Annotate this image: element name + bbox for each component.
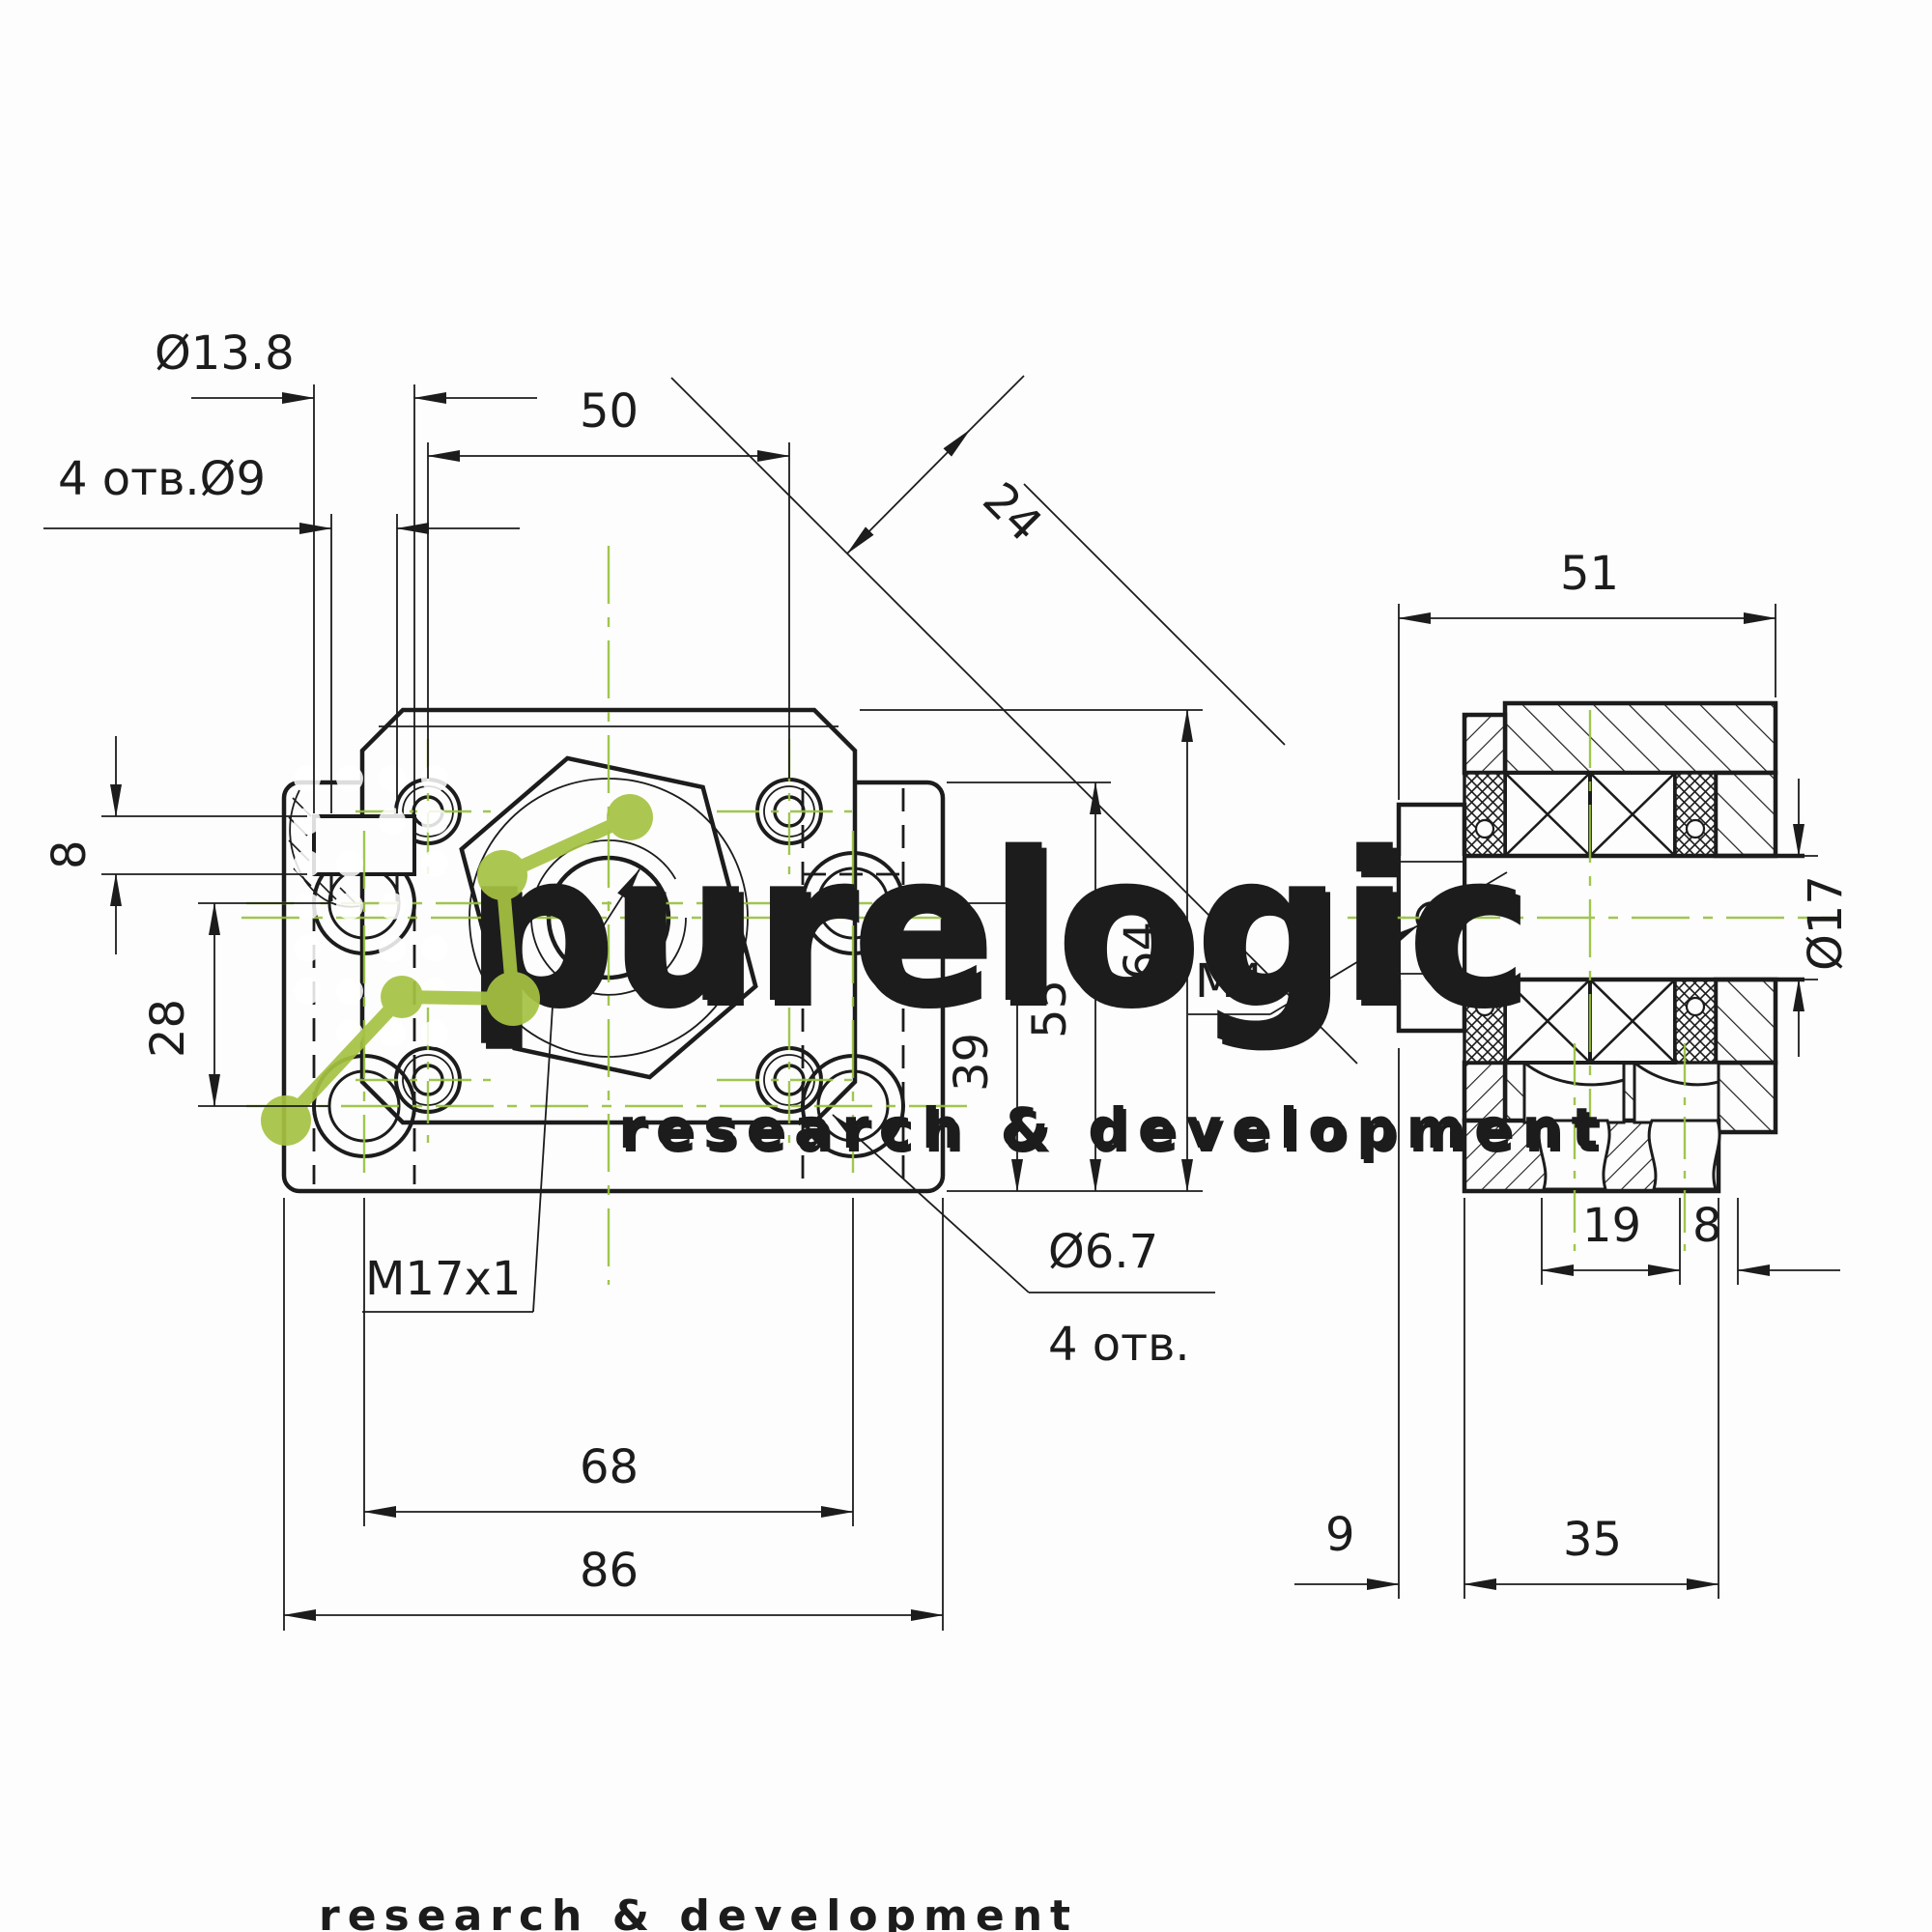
watermark-footer: research & development (319, 1891, 1078, 1932)
dim-24-text: 24 (973, 472, 1053, 553)
watermark: purelogic purelogic research & developme… (261, 765, 1610, 1932)
watermark-tagline: research & development (618, 1095, 1607, 1161)
watermark-brand: purelogic (464, 807, 1525, 1049)
dim-bore: Ø17 (1779, 779, 1853, 1057)
dim-thread-text: M17x1 (365, 1252, 521, 1306)
dim-28-text: 28 (141, 999, 195, 1058)
dim-19-text: 19 (1582, 1199, 1641, 1253)
dim-bore-text: Ø17 (1799, 875, 1853, 971)
dim-9-text: 9 (1325, 1508, 1355, 1562)
dim-set-screw-text: M4 (1195, 954, 1264, 1009)
dim-cbore-dia-text: Ø13.8 (155, 327, 295, 381)
cad-drawing: purelogic purelogic research & developme… (0, 0, 1932, 1932)
dim-86-text: 86 (580, 1544, 639, 1598)
dim-50-text: 50 (580, 384, 639, 439)
dim-19: 19 (1542, 1198, 1680, 1285)
dim-flange-dia-text: Ø6.7 (1048, 1225, 1158, 1279)
dim-55-text: 55 (1023, 980, 1077, 1038)
dim-8-front-text: 8 (43, 839, 97, 869)
dim-8-side: 8 (1692, 1198, 1840, 1285)
dim-flange-count-text: 4 отв. (1048, 1318, 1190, 1372)
dim-35-text: 35 (1563, 1513, 1622, 1567)
dim-39-text: 39 (945, 1033, 999, 1092)
dim-51-text: 51 (1560, 547, 1619, 601)
dim-8-front: 8 (43, 736, 307, 954)
dim-8-side-text: 8 (1692, 1199, 1722, 1253)
drawing-page: purelogic purelogic research & developme… (0, 0, 1932, 1932)
dim-64-text: 64 (1115, 922, 1169, 980)
dim-base-holes-text: 4 отв.Ø9 (58, 452, 266, 506)
dim-68-text: 68 (580, 1440, 639, 1494)
